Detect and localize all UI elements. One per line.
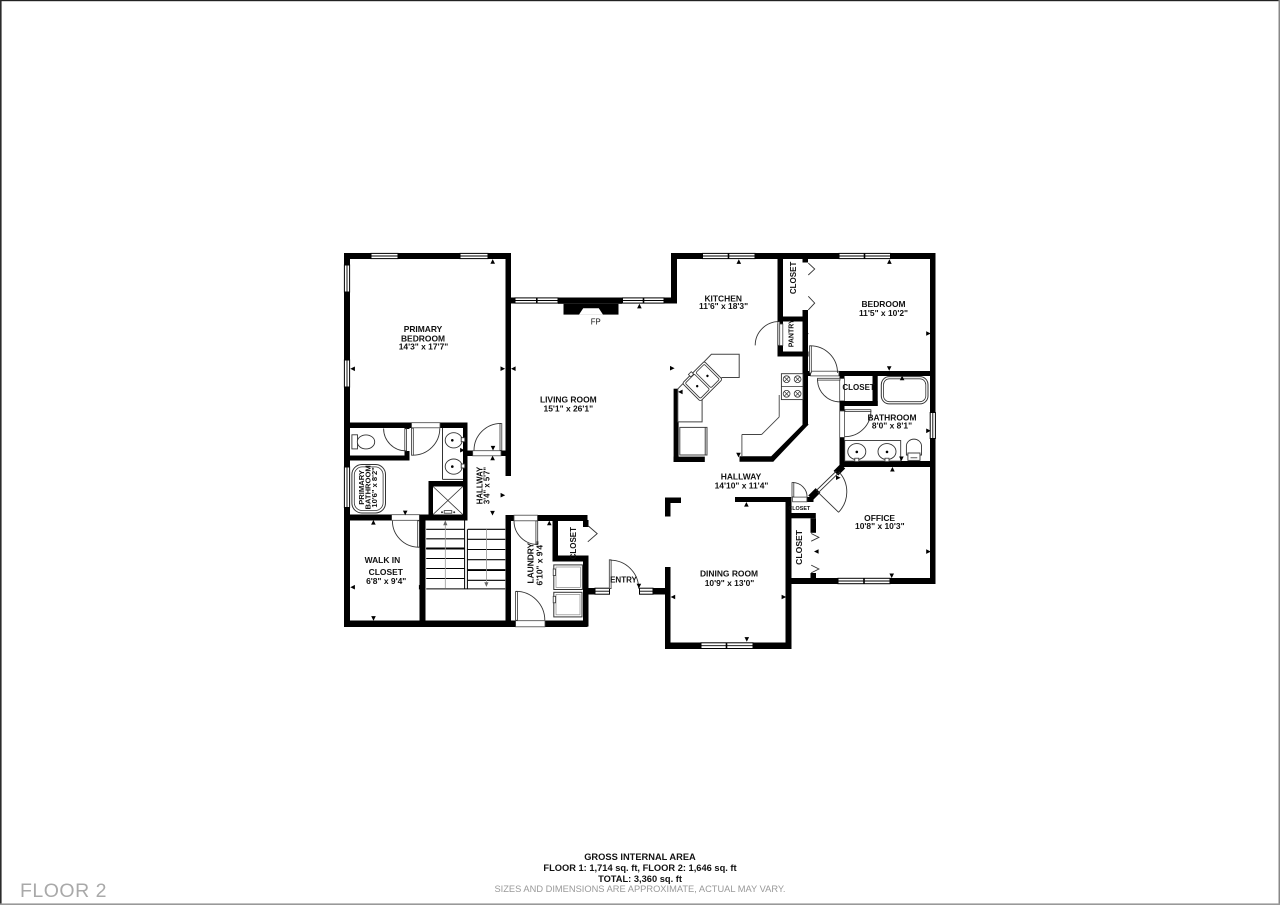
svg-text:15'1" x 26'1": 15'1" x 26'1": [544, 404, 594, 414]
svg-text:3'4" x 5'7": 3'4" x 5'7": [482, 467, 491, 504]
svg-text:10'9" x 13'0": 10'9" x 13'0": [705, 578, 755, 588]
svg-text:CLOSET: CLOSET: [842, 383, 875, 392]
svg-text:CLOSET: CLOSET: [788, 506, 811, 512]
svg-text:8'0" x 8'1": 8'0" x 8'1": [872, 421, 912, 431]
svg-text:11'5" x 10'2": 11'5" x 10'2": [859, 308, 908, 318]
svg-text:14'3" x 17'7": 14'3" x 17'7": [399, 342, 449, 352]
svg-text:14'10" x 11'4": 14'10" x 11'4": [715, 480, 769, 490]
svg-text:11'6" x 18'3": 11'6" x 18'3": [699, 301, 748, 311]
svg-text:10'8" x 10'3": 10'8" x 10'3": [855, 521, 905, 531]
svg-text:10'6" x 8'2": 10'6" x 8'2": [370, 467, 379, 508]
svg-text:CLOSET: CLOSET: [794, 529, 804, 565]
svg-text:FP: FP: [591, 317, 601, 326]
svg-text:WALK IN: WALK IN: [365, 555, 401, 565]
svg-text:CLOSET: CLOSET: [569, 527, 578, 560]
svg-text:PANTRY: PANTRY: [789, 319, 796, 347]
svg-text:6'8" x 9'4": 6'8" x 9'4": [366, 576, 406, 586]
svg-text:ENTRY: ENTRY: [610, 576, 637, 585]
svg-text:6'10" x 9'4": 6'10" x 9'4": [535, 541, 545, 586]
svg-text:CLOSET: CLOSET: [789, 262, 798, 295]
